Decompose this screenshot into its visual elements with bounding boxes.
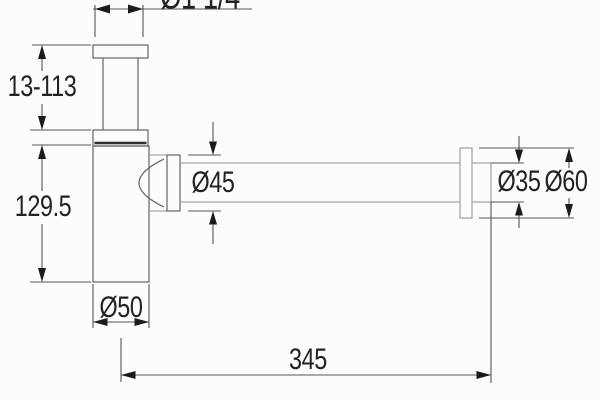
dim-wall-tube (491, 136, 524, 228)
arrowhead-down-icon (515, 150, 523, 164)
outlet-connector-lines (149, 155, 167, 211)
dim-outlet-nut-lines (188, 122, 221, 244)
outlet-nut (167, 155, 180, 211)
arrowhead-left-icon (93, 318, 108, 326)
drawing-linework (0, 0, 600, 400)
arrowhead-up-icon (515, 202, 523, 216)
outlet-assembly (139, 155, 180, 211)
arrowhead-left-icon (121, 371, 136, 379)
dim-outlet-nut (188, 122, 221, 244)
arrowhead-up-icon (38, 145, 46, 159)
arrowhead-right-icon (477, 371, 492, 379)
horizontal-tube (180, 163, 491, 202)
arrowhead-down-icon (209, 142, 217, 156)
dim-tube-length-lines (121, 202, 491, 383)
arrowhead-down-icon (38, 268, 46, 282)
wall-flange (460, 148, 472, 218)
dim-wall-flange-lines (479, 148, 574, 218)
dim-body-diameter (93, 284, 149, 328)
dim-inlet-thread (93, 5, 252, 38)
dim-tube-length (121, 202, 491, 383)
dim-wall-flange (479, 148, 574, 218)
arrowhead-up-icon (565, 148, 573, 162)
technical-drawing-canvas: Ø1 1/4 13-113 129.5 Ø45 Ø35 Ø60 Ø50 345 (0, 0, 600, 400)
tailpiece-tube (103, 58, 138, 130)
inlet-tailpiece (93, 45, 148, 146)
arrowhead-down-icon (565, 204, 573, 218)
arrowhead-right-icon (135, 318, 150, 326)
outlet-dome-arc (139, 159, 164, 207)
arrowhead-right-icon (128, 5, 143, 14)
arrowhead-up-icon (38, 45, 46, 59)
dim-body-height-lines (30, 145, 91, 282)
arrowhead-down-icon (38, 116, 46, 130)
wall-tube-group (180, 148, 491, 218)
arrowhead-left-icon (95, 5, 110, 14)
dim-inlet-height (30, 45, 91, 130)
bottle-body (93, 146, 149, 282)
tailpiece-top-flange (93, 45, 148, 58)
dim-inlet-thread-lines (93, 5, 252, 37)
dim-body-height (30, 145, 91, 282)
arrowhead-up-icon (209, 211, 217, 225)
